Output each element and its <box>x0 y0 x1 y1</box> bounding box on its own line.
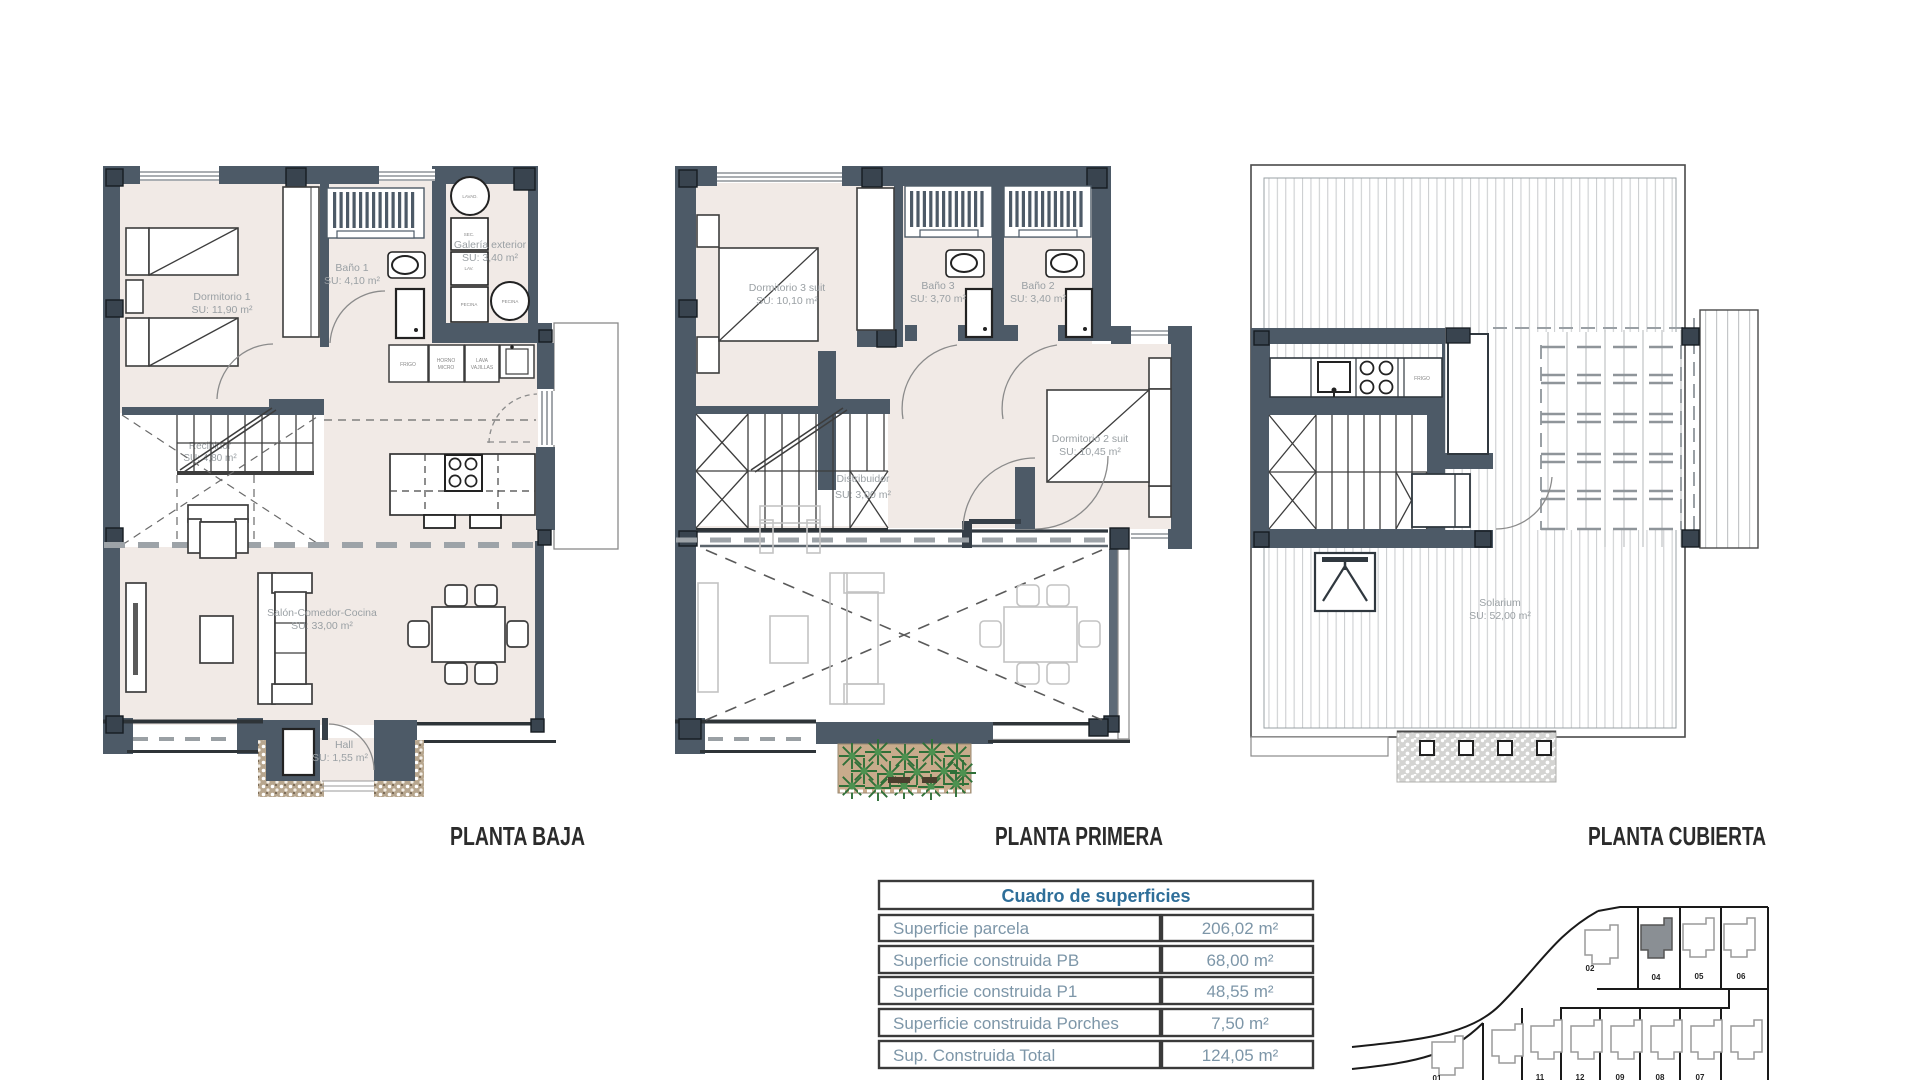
svg-text:FRIGO: FRIGO <box>400 362 416 368</box>
svg-text:Superficie parcela: Superficie parcela <box>893 919 1030 938</box>
svg-text:PLANTA BAJA: PLANTA BAJA <box>450 821 585 851</box>
svg-text:01: 01 <box>1433 1074 1442 1080</box>
svg-text:7,50 m²: 7,50 m² <box>1211 1014 1269 1033</box>
svg-text:Superficie construida Porches: Superficie construida Porches <box>893 1014 1119 1033</box>
svg-text:SU: 11,90 m²: SU: 11,90 m² <box>191 304 253 316</box>
svg-text:Galería exterior: Galería exterior <box>454 239 527 251</box>
svg-text:Superficie construida PB: Superficie construida PB <box>893 951 1079 970</box>
svg-text:PLANTA PRIMERA: PLANTA PRIMERA <box>995 821 1163 851</box>
svg-text:Baño 3: Baño 3 <box>921 280 954 292</box>
svg-text:Dormitorio 2 suit: Dormitorio 2 suit <box>1052 433 1129 445</box>
svg-text:206,02 m²: 206,02 m² <box>1202 919 1279 938</box>
svg-text:Baño 2: Baño 2 <box>1021 280 1054 292</box>
svg-text:06: 06 <box>1737 972 1746 981</box>
svg-text:48,55 m²: 48,55 m² <box>1206 982 1273 1001</box>
svg-text:Hall: Hall <box>335 739 353 751</box>
svg-text:SU: 3,40 m²: SU: 3,40 m² <box>462 252 519 264</box>
svg-text:09: 09 <box>1616 1073 1625 1080</box>
svg-text:Salón-Comedor-Cocina: Salón-Comedor-Cocina <box>267 607 377 619</box>
svg-text:04: 04 <box>1652 973 1661 982</box>
svg-text:SU: 33,00 m²: SU: 33,00 m² <box>291 620 353 632</box>
svg-text:Baño 1: Baño 1 <box>335 262 368 274</box>
svg-text:05: 05 <box>1695 972 1704 981</box>
svg-text:02: 02 <box>1586 964 1595 973</box>
svg-text:SEC.: SEC. <box>464 232 475 237</box>
svg-text:SU: 4,10 m²: SU: 4,10 m² <box>324 275 381 287</box>
svg-text:SU: 3,00 m²: SU: 3,00 m² <box>835 489 892 501</box>
svg-text:LAVAD.: LAVAD. <box>462 194 477 199</box>
svg-text:Dormitorio 1: Dormitorio 1 <box>193 291 250 303</box>
svg-text:Solarium: Solarium <box>1479 597 1521 609</box>
svg-text:PECINA: PECINA <box>461 302 478 307</box>
svg-text:LAVA: LAVA <box>476 358 489 364</box>
svg-text:Distribuidor: Distribuidor <box>836 473 890 485</box>
svg-text:12: 12 <box>1576 1073 1585 1080</box>
svg-text:PLANTA CUBIERTA: PLANTA CUBIERTA <box>1588 821 1766 851</box>
svg-text:SU: 52,00 m²: SU: 52,00 m² <box>1469 610 1531 622</box>
svg-text:SU: 3,40 m²: SU: 3,40 m² <box>1010 293 1067 305</box>
svg-text:08: 08 <box>1656 1073 1665 1080</box>
svg-text:VAJILLAS: VAJILLAS <box>471 365 494 371</box>
svg-text:07: 07 <box>1696 1073 1705 1080</box>
svg-text:PECINA: PECINA <box>502 299 519 304</box>
svg-text:SU: 1,55 m²: SU: 1,55 m² <box>312 752 369 764</box>
svg-text:11: 11 <box>1536 1073 1545 1080</box>
svg-text:SU: 3,70 m²: SU: 3,70 m² <box>910 293 967 305</box>
svg-text:HORNO: HORNO <box>437 358 456 364</box>
svg-text:68,00 m²: 68,00 m² <box>1206 951 1273 970</box>
svg-text:Dormitorio 3 suit: Dormitorio 3 suit <box>749 282 826 294</box>
svg-text:SU: 10,45 m²: SU: 10,45 m² <box>1059 446 1121 458</box>
svg-text:Superficie construida P1: Superficie construida P1 <box>893 982 1077 1001</box>
svg-text:MICRO: MICRO <box>438 365 455 371</box>
svg-text:FRIGO: FRIGO <box>1414 376 1430 382</box>
svg-text:SU: 10,10 m²: SU: 10,10 m² <box>756 295 818 307</box>
svg-text:Sup. Construida Total: Sup. Construida Total <box>893 1046 1055 1065</box>
svg-text:LAV.: LAV. <box>464 266 473 271</box>
svg-text:124,05 m²: 124,05 m² <box>1202 1046 1279 1065</box>
svg-text:Cuadro de superficies: Cuadro de superficies <box>1001 886 1190 906</box>
